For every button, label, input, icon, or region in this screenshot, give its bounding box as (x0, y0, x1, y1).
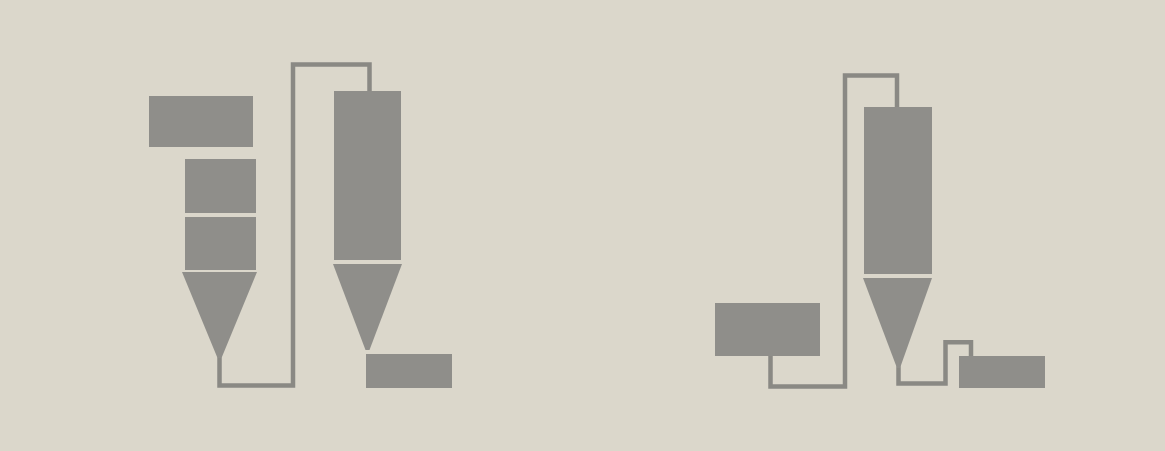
tower-upper-section-icon (185, 159, 256, 213)
tower-lower-section-icon (185, 217, 256, 270)
cyclone-body-icon (334, 91, 401, 260)
process-flow-diagram (0, 0, 1165, 451)
cyclone-body-icon (864, 107, 932, 274)
collector-box-icon (366, 354, 452, 388)
diagram-canvas (0, 0, 1165, 451)
feed-box-icon (149, 96, 253, 147)
feed-box-icon (715, 303, 820, 356)
collector-box-icon (959, 356, 1045, 388)
